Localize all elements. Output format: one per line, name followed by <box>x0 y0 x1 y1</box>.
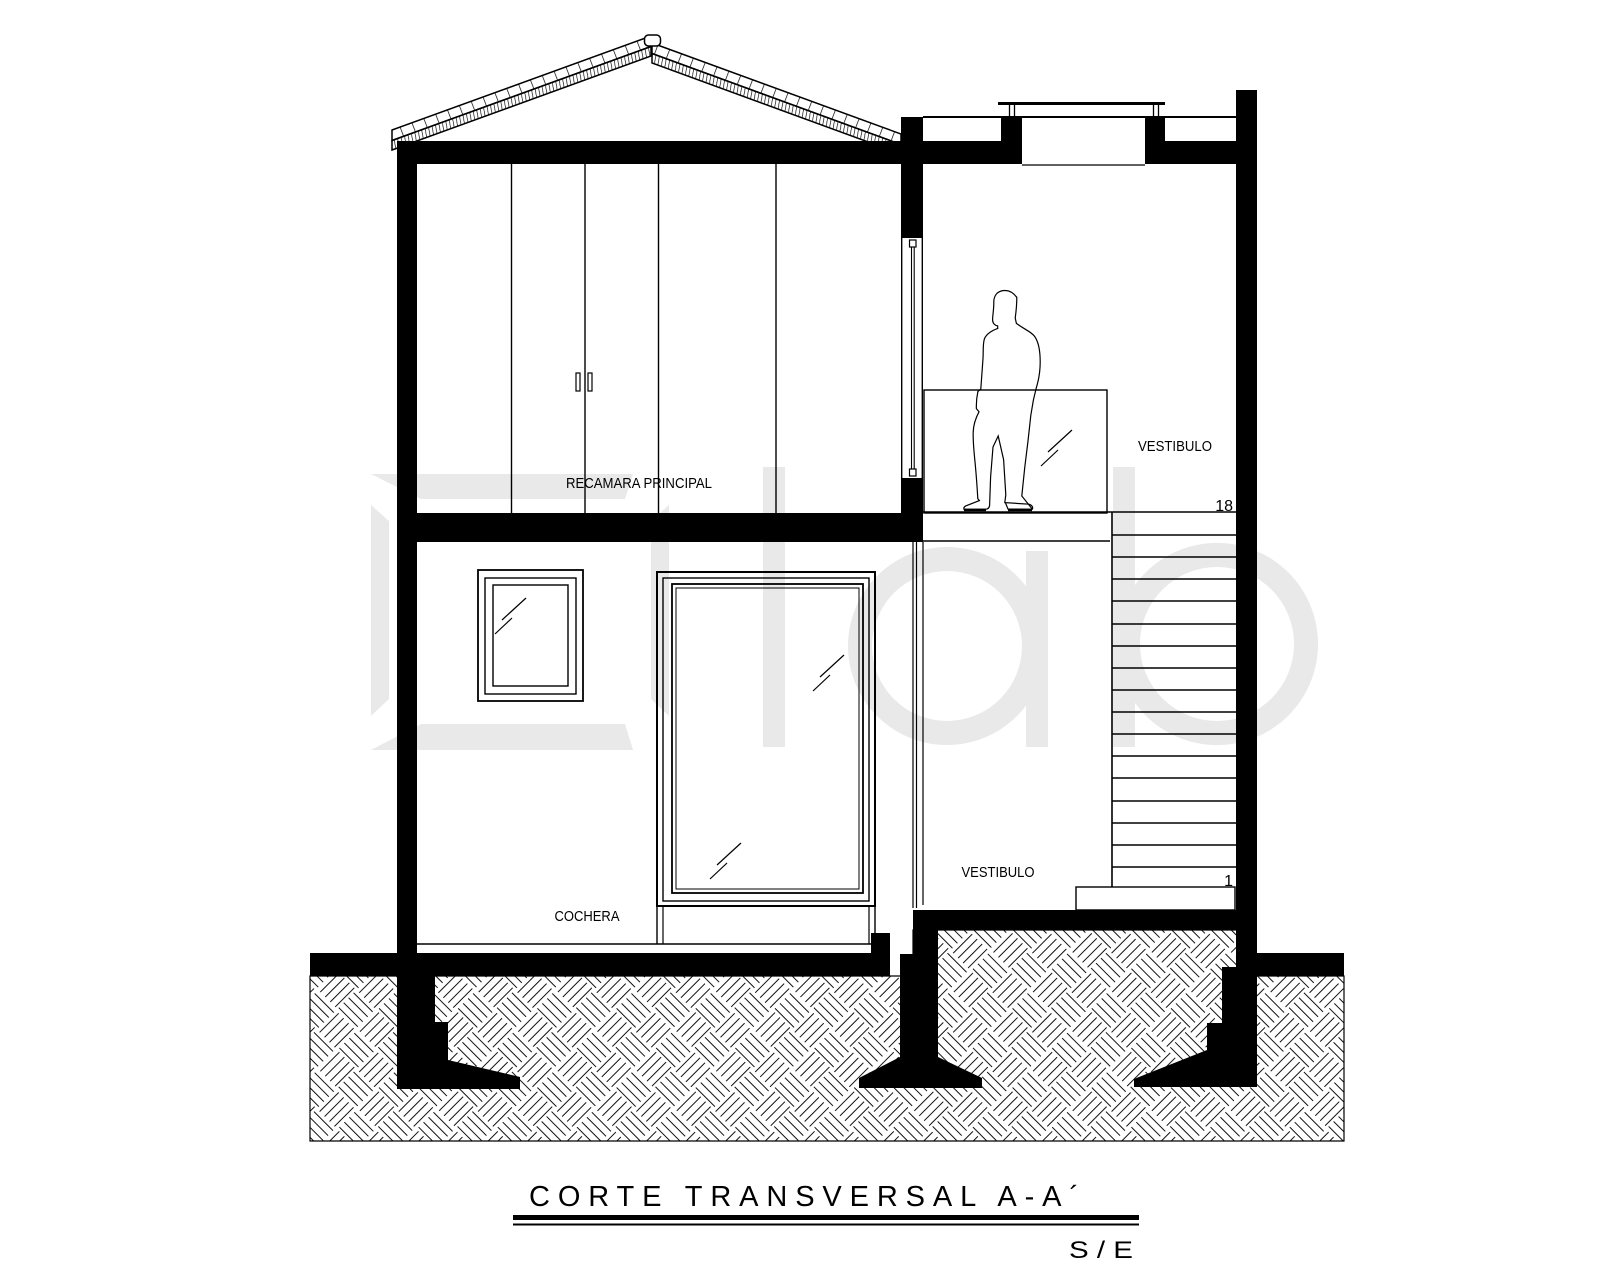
svg-text:COCHERA: COCHERA <box>555 908 620 925</box>
svg-text:VESTIBULO: VESTIBULO <box>1138 438 1212 455</box>
svg-text:18: 18 <box>1215 498 1233 515</box>
svg-text:VESTIBULO: VESTIBULO <box>962 864 1035 881</box>
svg-text:S / E: S / E <box>1069 1237 1133 1264</box>
